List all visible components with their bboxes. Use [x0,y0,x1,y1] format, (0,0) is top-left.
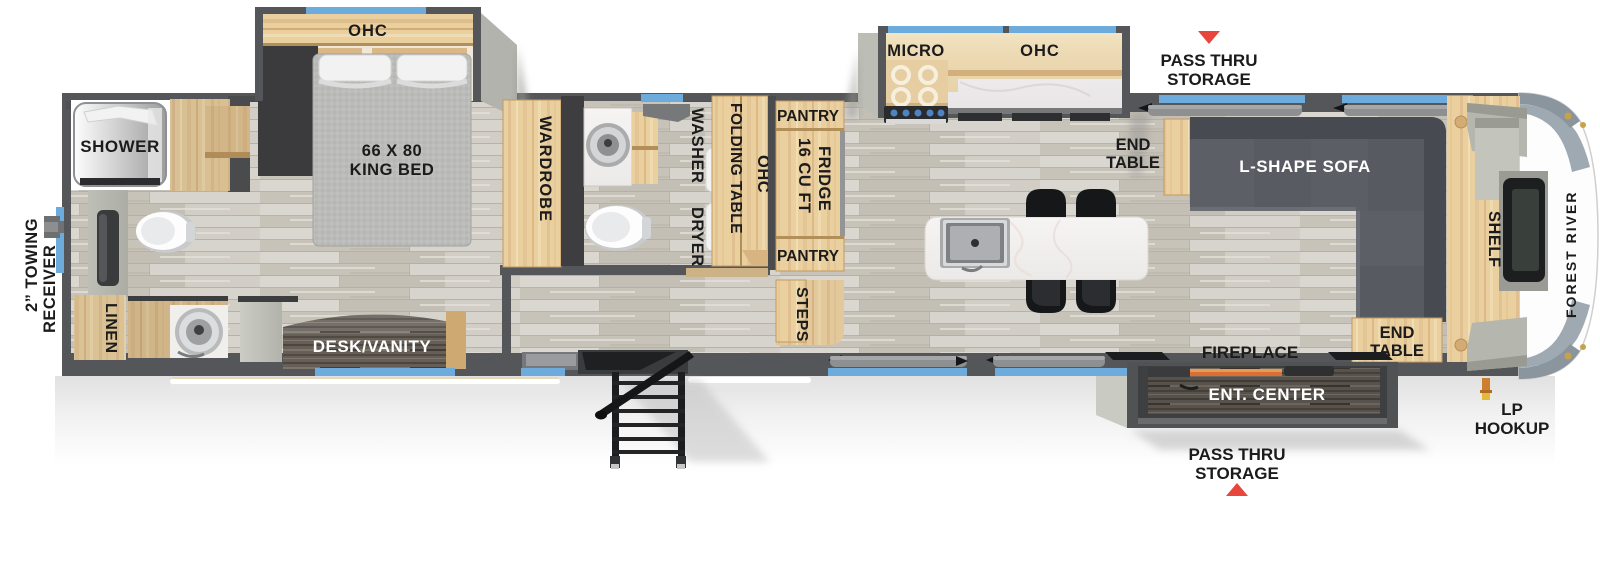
svg-text:2” TOWING: 2” TOWING [23,218,41,312]
svg-text:DESK/VANITY: DESK/VANITY [313,337,432,356]
svg-text:HOOKUP: HOOKUP [1475,419,1550,438]
svg-text:L-SHAPE SOFA: L-SHAPE SOFA [1239,157,1371,176]
svg-text:FOREST RIVER: FOREST RIVER [1563,191,1579,318]
svg-text:LP: LP [1501,400,1523,419]
svg-text:STEPS: STEPS [793,287,810,342]
svg-text:PANTRY: PANTRY [777,248,840,265]
svg-text:DRYER: DRYER [688,207,706,267]
svg-text:STORAGE: STORAGE [1167,70,1251,89]
svg-text:ENT. CENTER: ENT. CENTER [1209,385,1326,404]
svg-text:PASS THRU: PASS THRU [1189,445,1286,464]
svg-text:SHELF: SHELF [1485,211,1503,268]
svg-text:SHOWER: SHOWER [80,137,160,156]
svg-text:PASS THRU: PASS THRU [1161,51,1258,70]
svg-text:FOLDING TABLE: FOLDING TABLE [727,103,744,234]
svg-text:RECEIVER: RECEIVER [41,245,59,333]
svg-text:PANTRY: PANTRY [777,108,840,125]
svg-text:STORAGE: STORAGE [1195,464,1279,483]
svg-text:END: END [1116,136,1151,154]
svg-text:16 CU FT: 16 CU FT [795,138,813,214]
svg-text:MICRO: MICRO [887,42,945,60]
svg-text:OHC: OHC [348,22,388,40]
svg-text:FIREPLACE: FIREPLACE [1202,343,1298,362]
svg-text:FRIDGE: FRIDGE [815,146,833,211]
svg-text:END: END [1380,324,1415,342]
svg-text:LINEN: LINEN [102,303,119,354]
svg-text:TABLE: TABLE [1106,154,1160,172]
svg-text:WARDROBE: WARDROBE [536,116,554,222]
svg-text:OHC: OHC [1020,42,1060,60]
svg-text:KING BED: KING BED [350,161,435,179]
svg-text:WASHER: WASHER [688,108,706,183]
svg-text:66 X 80: 66 X 80 [362,142,422,160]
